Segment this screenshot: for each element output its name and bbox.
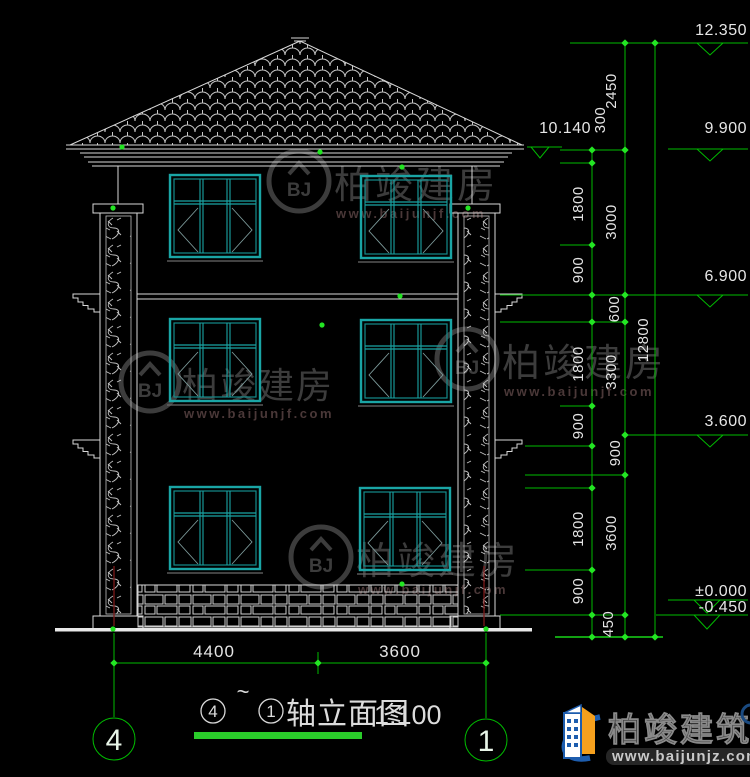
elevation-value: -0.450 — [699, 599, 747, 616]
dim-label: 450 — [600, 611, 617, 638]
dim-label: 300 — [592, 107, 609, 134]
floor-band-2f — [73, 294, 522, 312]
title-underline — [194, 732, 362, 739]
dim-label: 3600 — [379, 642, 421, 661]
elevation-eave-left: 10.140 — [527, 120, 591, 158]
logo-name: 柏竣建筑 — [608, 711, 750, 748]
dim-label: 3600 — [603, 515, 620, 550]
floor-band-1f — [73, 440, 522, 458]
title-axis-start: 4 — [208, 702, 217, 721]
dim-label: 2450 — [603, 73, 620, 108]
drawing-title: 4 ~ 1 轴立面图 1:100 — [194, 679, 442, 739]
watermark-monogram: BJ — [138, 381, 162, 402]
elevation-value: ±0.000 — [695, 583, 747, 600]
dim-label: 3300 — [603, 354, 620, 389]
watermark-monogram: BJ — [287, 180, 311, 201]
stone-base — [138, 585, 458, 627]
window-1f-left — [167, 487, 263, 573]
watermark-monogram: BJ — [309, 556, 333, 577]
dim-label: 900 — [607, 440, 624, 467]
dim-label: 3000 — [603, 204, 620, 239]
axis-number: 1 — [478, 725, 495, 758]
watermark-roof-icon — [289, 163, 309, 174]
watermark-url: www.baijunjf.com — [183, 406, 334, 421]
watermark-roof-icon — [311, 539, 331, 550]
watermark-roof-icon — [140, 364, 160, 375]
elevation-base: -0.450 — [694, 599, 747, 629]
company-logo: 柏竣建筑 www.baijunjz.com — [564, 705, 750, 765]
elevation-3f: 9.900 — [668, 120, 748, 161]
dim-label-total: 12800 — [635, 318, 652, 362]
left-pilaster — [93, 204, 143, 629]
title-scale: 1:100 — [374, 700, 442, 730]
elevation-ridge: 12.350 — [695, 22, 747, 55]
dim-label: 1800 — [570, 346, 587, 381]
logo-building-icon — [564, 705, 595, 758]
title-axis-end: 1 — [266, 702, 275, 721]
elevation-value: 10.140 — [539, 120, 591, 137]
elevation-value: 9.900 — [704, 120, 747, 137]
elevation-2f: 6.900 — [697, 268, 747, 307]
elevation-1f: 3.600 — [697, 413, 747, 447]
elevation-value: 3.600 — [704, 413, 747, 430]
window-3f-left — [167, 175, 263, 261]
dim-label: 900 — [570, 257, 587, 284]
axis-bubble-4: 4 — [93, 718, 135, 760]
dim-label: 900 — [570, 413, 587, 440]
roof — [66, 38, 524, 149]
dim-label: 4400 — [193, 642, 235, 661]
eave-line — [66, 145, 524, 149]
cad-elevation-canvas: BJ 柏竣建房 www.baijunjf.com BJ 柏竣建房 www.bai… — [0, 0, 750, 777]
elevation-value: 12.350 — [695, 22, 747, 39]
dim-label: 900 — [570, 578, 587, 605]
watermark-url: www.baijunjf.com — [503, 384, 654, 399]
axis-number: 4 — [106, 724, 123, 757]
logo-url: www.baijunjz.com — [611, 748, 750, 765]
elevation-value: 6.900 — [704, 268, 747, 285]
title-tilde: ~ — [237, 679, 250, 704]
dim-label: 1800 — [570, 186, 587, 221]
watermark-name: 柏竣建房 — [334, 165, 498, 207]
axis-bubble-1: 1 — [465, 719, 507, 761]
dim-label: 1800 — [570, 511, 587, 546]
dim-label: 600 — [606, 296, 623, 323]
ground-line — [55, 628, 532, 632]
